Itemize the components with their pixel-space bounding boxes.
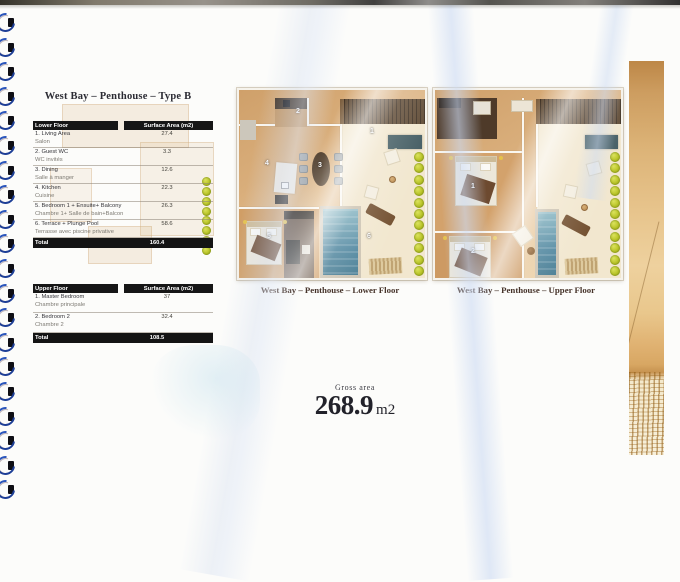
room-number: 4 <box>265 160 269 167</box>
upper-floor-table: Upper Floor Surface Area (m2) 1. Master … <box>33 284 213 343</box>
header-surface-area: Surface Area (m2) <box>124 284 213 293</box>
sunset-photo-strip <box>629 61 664 455</box>
area-value: 12.6 <box>135 166 199 183</box>
closet <box>511 100 533 112</box>
table-row: 1. Living AreaSalon 27.4 <box>33 130 213 148</box>
dining-chair <box>299 165 308 173</box>
tree-icon <box>414 243 424 253</box>
dining-chair <box>334 177 343 185</box>
tree-icon <box>414 152 424 162</box>
header-floor: Upper Floor <box>33 284 118 293</box>
coil-wire <box>0 83 19 110</box>
wc-counter <box>275 98 307 109</box>
wall <box>307 98 309 126</box>
table-total-row: Total 160.4 <box>33 238 213 248</box>
table-row: 6. Terrace + Plunge PoolTerrasse avec pi… <box>33 220 213 238</box>
pool-water <box>323 209 358 275</box>
room-number: 1 <box>471 183 475 190</box>
beach-chairs <box>565 257 599 275</box>
spiral-coil <box>0 381 22 402</box>
kitchen-island <box>274 162 298 194</box>
bedside-lamp <box>243 220 247 224</box>
bedside-lamp <box>283 220 287 224</box>
tree-icon <box>414 209 424 219</box>
photo-top-edge <box>0 0 680 5</box>
coil-wire <box>0 231 19 258</box>
round-table <box>581 204 588 211</box>
table-header-row: Lower Floor Surface Area (m2) <box>33 121 213 130</box>
coil-wire <box>0 378 19 405</box>
pool-below <box>535 209 559 278</box>
plunge-pool <box>320 206 361 278</box>
spiral-coil <box>0 12 22 33</box>
tree-icon <box>610 175 620 185</box>
spiral-coil <box>0 430 22 451</box>
area-value: 58.6 <box>135 220 199 237</box>
area-value: 3.3 <box>135 148 199 165</box>
bath-counter <box>284 211 314 219</box>
spiral-coil <box>0 479 22 500</box>
spiral-coil <box>0 406 22 427</box>
spiral-binding <box>0 4 30 508</box>
header-surface-area: Surface Area (m2) <box>124 121 213 130</box>
page-title: West Bay – Penthouse – Type B <box>33 91 203 102</box>
glare-patch <box>150 345 260 440</box>
spiral-coil <box>0 356 22 377</box>
dining-chair <box>299 153 308 161</box>
gross-area-block: Gross area 268.9m2 <box>270 383 440 419</box>
sail-line <box>629 221 659 393</box>
table-row: 3. DiningSalle à manger 12.6 <box>33 166 213 184</box>
spiral-coil <box>0 184 22 205</box>
area-value: 32.4 <box>135 313 199 332</box>
tree-icon <box>414 255 424 265</box>
coil-wire <box>0 427 19 454</box>
water-sparkle <box>629 372 664 455</box>
coil-wire <box>0 58 19 85</box>
spiral-coil <box>0 283 22 304</box>
spiral-coil <box>0 61 22 82</box>
coil-wire <box>0 329 19 356</box>
coil-wire <box>0 132 19 159</box>
coil-wire <box>0 452 19 479</box>
bedside-lamp <box>499 156 503 160</box>
headboard <box>450 237 490 242</box>
tree-icon <box>610 232 620 242</box>
stairs <box>536 99 623 124</box>
lower-floor-table: Lower Floor Surface Area (m2) 1. Living … <box>33 121 213 248</box>
round-table <box>527 247 535 255</box>
trees-column <box>610 152 621 276</box>
wall <box>536 124 538 207</box>
room-number: 1 <box>370 128 374 135</box>
wc-sink <box>283 100 290 107</box>
tree-icon <box>610 243 620 253</box>
kitchen-sink <box>281 182 289 189</box>
round-table <box>389 176 396 183</box>
spiral-coil <box>0 233 22 254</box>
wall <box>522 98 524 278</box>
coil-wire <box>0 477 19 504</box>
upper-floor-plan: 1 2 <box>433 88 623 280</box>
spiral-coil <box>0 86 22 107</box>
utility-box <box>240 120 256 140</box>
spiral-coil <box>0 209 22 230</box>
shower-tray <box>473 101 491 115</box>
pool-water <box>538 212 556 275</box>
lower-floor-plan: 1 2 3 4 5 6 <box>237 88 427 280</box>
area-value: 22.3 <box>135 184 199 201</box>
coil-wire <box>0 108 19 135</box>
coil-wire <box>0 304 19 331</box>
trees-column <box>414 152 425 276</box>
dining-table <box>312 152 330 186</box>
sofa <box>585 135 618 149</box>
table-row: 4. KitchenCuisine 22.3 <box>33 184 213 202</box>
dining-chair <box>334 165 343 173</box>
shower <box>286 240 300 264</box>
coil-wire <box>0 354 19 381</box>
room-number: 5 <box>267 233 271 240</box>
dining-chair <box>334 153 343 161</box>
upper-plan-caption: West Bay – Penthouse – Upper Floor <box>433 285 619 295</box>
room-number: 2 <box>296 108 300 115</box>
tree-icon <box>414 163 424 173</box>
table-row: 2. Guest WCWC invités 3.3 <box>33 148 213 166</box>
tree-icon <box>414 266 424 276</box>
room-number: 3 <box>318 162 322 169</box>
header-floor: Lower Floor <box>33 121 118 130</box>
dining-chair <box>299 177 308 185</box>
coil-wire <box>0 280 19 307</box>
bedside-lamp <box>493 236 497 240</box>
tree-icon <box>610 220 620 230</box>
spiral-coil <box>0 160 22 181</box>
bedside-lamp <box>449 156 453 160</box>
stairs <box>340 99 427 124</box>
coil-wire <box>0 157 19 184</box>
toilet <box>302 245 310 254</box>
spiral-coil <box>0 332 22 353</box>
pillow <box>460 163 471 171</box>
table-row: 2. Bedroom 2Chambre 2 32.4 <box>33 313 213 333</box>
spiral-coil <box>0 135 22 156</box>
total-value: 160.4 <box>125 240 189 246</box>
tree-icon <box>414 198 424 208</box>
room-number: 6 <box>367 233 371 240</box>
lower-plan-caption: West Bay – Penthouse – Lower Floor <box>237 285 423 295</box>
spiral-coil <box>0 307 22 328</box>
tree-icon <box>610 163 620 173</box>
coil-wire <box>0 255 19 282</box>
tree-icon <box>610 255 620 265</box>
headboard <box>247 222 281 227</box>
tree-icon <box>610 209 620 219</box>
tree-icon <box>414 175 424 185</box>
tree-icon <box>414 232 424 242</box>
coil-wire <box>0 403 19 430</box>
tree-icon <box>610 266 620 276</box>
area-value: 26.3 <box>135 202 199 219</box>
gross-area-value: 268.9 <box>315 390 373 420</box>
coil-wire <box>0 9 19 36</box>
total-value: 108.5 <box>125 335 189 341</box>
terrace-chair <box>563 184 578 199</box>
table-header-row: Upper Floor Surface Area (m2) <box>33 284 213 293</box>
tree-icon <box>414 186 424 196</box>
tree-icon <box>610 198 620 208</box>
coil-wire <box>0 34 19 61</box>
spiral-coil <box>0 258 22 279</box>
beach-chairs <box>369 257 403 275</box>
table-total-row: Total 108.5 <box>33 333 213 343</box>
pillow <box>480 163 491 171</box>
bedside-lamp <box>443 236 447 240</box>
bath-vanity <box>439 98 461 108</box>
table-row: 1. Master BedroomChambre principale 37 <box>33 293 213 313</box>
pillow <box>474 243 485 251</box>
coil-wire <box>0 181 19 208</box>
spiral-coil <box>0 455 22 476</box>
gross-area-unit: m2 <box>376 402 395 418</box>
sofa <box>388 135 422 149</box>
spiral-coil <box>0 110 22 131</box>
area-value: 37 <box>135 293 199 312</box>
area-value: 27.4 <box>135 130 199 147</box>
table-row: 5. Bedroom 1 + Ensuite+ BalconyChambre 1… <box>33 202 213 220</box>
tree-icon <box>610 152 620 162</box>
headboard <box>456 157 496 162</box>
tree-icon <box>610 186 620 196</box>
spiral-coil <box>0 37 22 58</box>
kitchen-range <box>275 195 288 204</box>
room-number: 2 <box>471 248 475 255</box>
coil-wire <box>0 206 19 233</box>
tree-icon <box>414 220 424 230</box>
